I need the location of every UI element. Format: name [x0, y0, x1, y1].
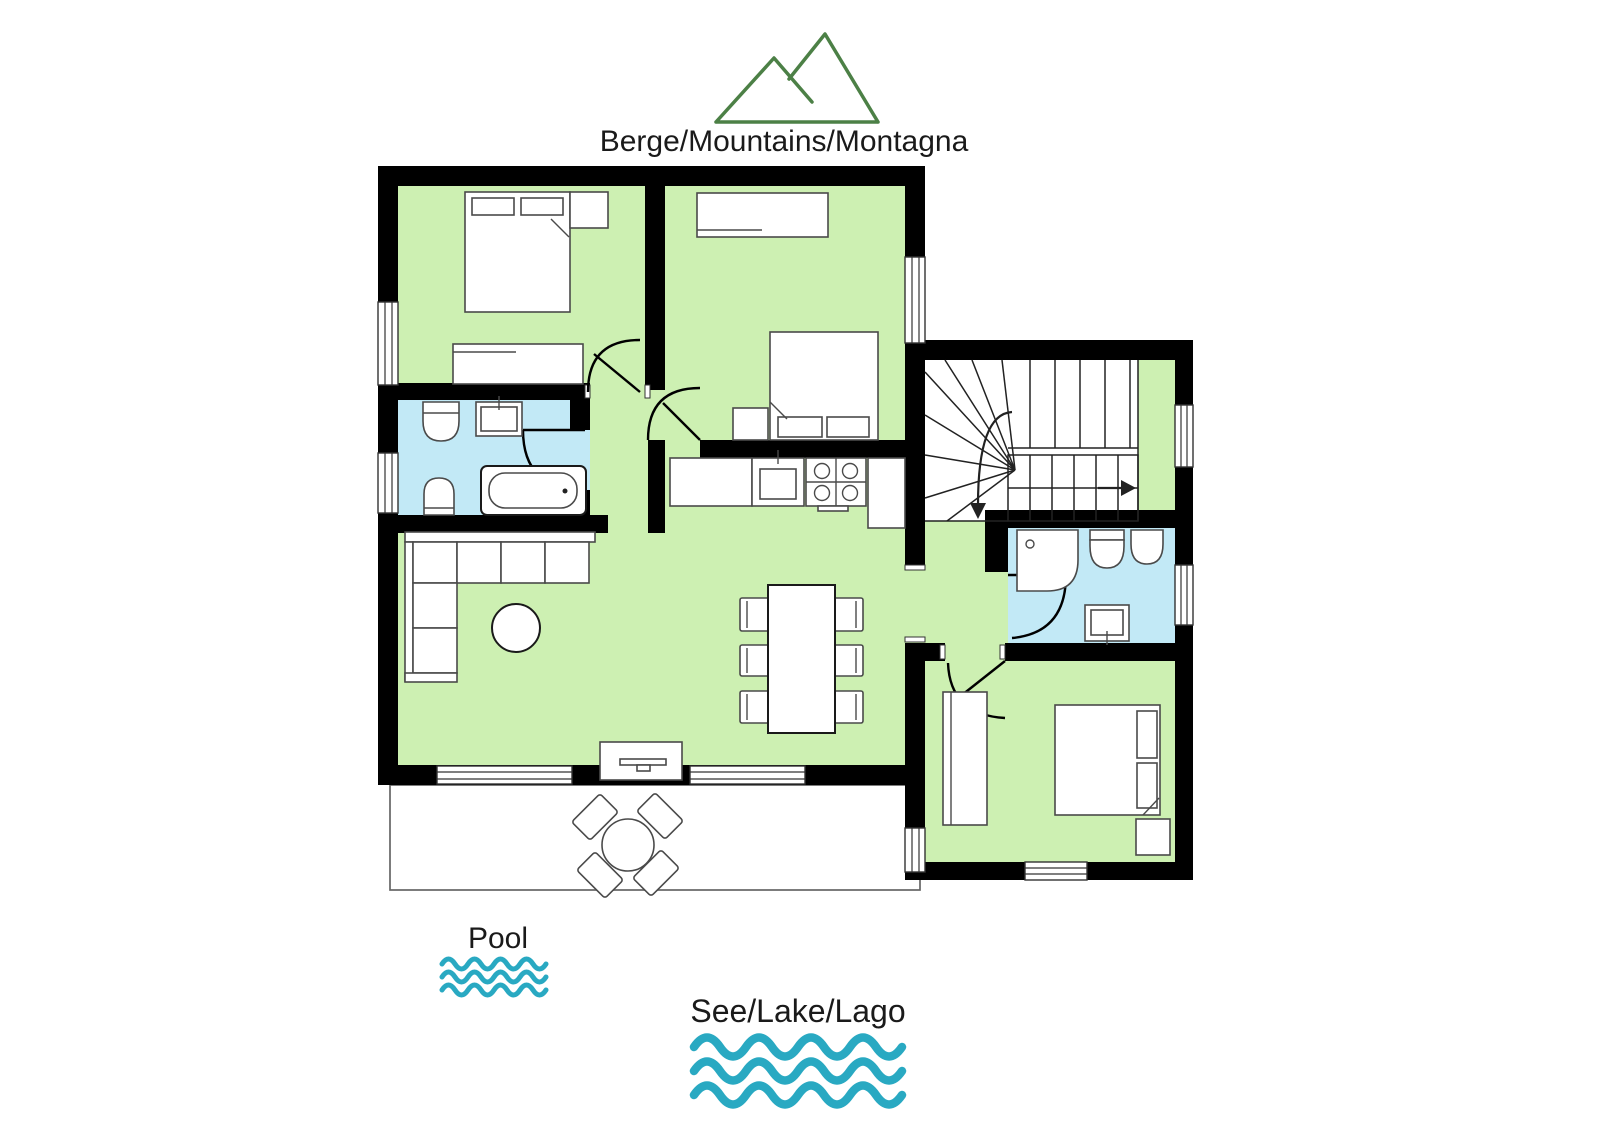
- bidet: [1131, 530, 1163, 564]
- bidet: [424, 478, 454, 515]
- toilet: [423, 402, 459, 441]
- nightstand: [733, 408, 768, 440]
- window: [1175, 405, 1193, 467]
- chair: [740, 598, 769, 631]
- stairwell-floor: [925, 360, 1138, 521]
- toilet-tank: [1090, 530, 1124, 540]
- shower: [1017, 530, 1078, 591]
- lake-label: See/Lake/Lago: [690, 993, 905, 1029]
- nightstand: [1136, 819, 1170, 855]
- chair: [834, 598, 863, 631]
- floor-plan-page: Berge/Mountains/Montagna: [0, 0, 1600, 1131]
- nightstand: [570, 192, 608, 228]
- chair: [740, 691, 769, 723]
- floor-plan-svg: Berge/Mountains/Montagna: [0, 0, 1600, 1131]
- pillow: [472, 198, 514, 215]
- window: [378, 453, 398, 513]
- chair: [834, 645, 863, 676]
- dresser: [453, 344, 583, 384]
- drain: [563, 489, 568, 494]
- waves-icon: [442, 959, 546, 995]
- dining-table: [768, 585, 835, 733]
- mountain-icon: [716, 34, 878, 122]
- lake-legend: See/Lake/Lago: [690, 993, 905, 1105]
- window: [1025, 862, 1087, 880]
- kitchen-counter: [868, 458, 905, 528]
- coffee-table: [492, 604, 540, 652]
- toilet: [1090, 540, 1124, 568]
- pillow: [521, 198, 563, 215]
- pool-label: Pool: [468, 922, 528, 955]
- dining-furniture: [740, 585, 863, 733]
- pillow: [1137, 763, 1157, 808]
- mountains-label: Berge/Mountains/Montagna: [600, 125, 969, 158]
- kitchen-counter: [670, 458, 752, 506]
- pool-legend: Pool: [442, 922, 546, 995]
- sliding-door[interactable]: [437, 766, 572, 784]
- window: [1175, 565, 1193, 625]
- wardrobe: [943, 692, 987, 825]
- window: [378, 302, 398, 385]
- pillow: [1137, 711, 1157, 758]
- pillow: [827, 417, 869, 437]
- window: [905, 828, 925, 872]
- tv: [620, 759, 666, 765]
- mountains-legend: Berge/Mountains/Montagna: [600, 34, 969, 158]
- waves-icon: [694, 1038, 902, 1105]
- chair: [834, 691, 863, 723]
- window: [905, 257, 925, 343]
- chair: [740, 645, 769, 676]
- sliding-door[interactable]: [690, 766, 805, 784]
- pillow: [778, 417, 822, 437]
- patio-table: [602, 819, 654, 871]
